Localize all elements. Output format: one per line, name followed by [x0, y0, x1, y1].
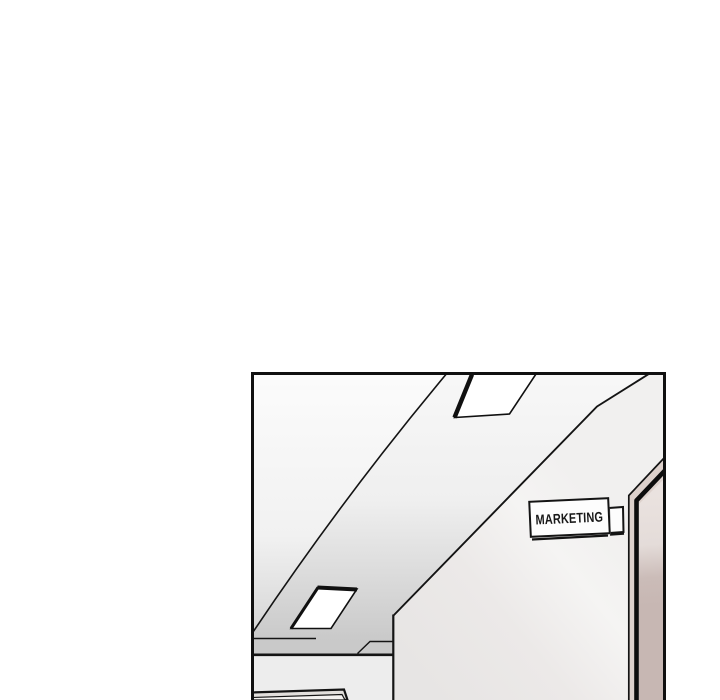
sign-mount-bracket: [609, 507, 624, 535]
marketing-sign-label: MARKETING: [535, 509, 603, 526]
ceiling-edge-band: [251, 640, 393, 655]
panel-artwork: [251, 372, 666, 700]
door-face: [639, 477, 666, 700]
whiteboard-top: [251, 690, 348, 700]
page-canvas: MARKETING: [0, 0, 720, 700]
comic-panel: MARKETING: [251, 372, 666, 700]
marketing-sign: MARKETING: [528, 497, 611, 538]
door-frame: [628, 456, 666, 700]
